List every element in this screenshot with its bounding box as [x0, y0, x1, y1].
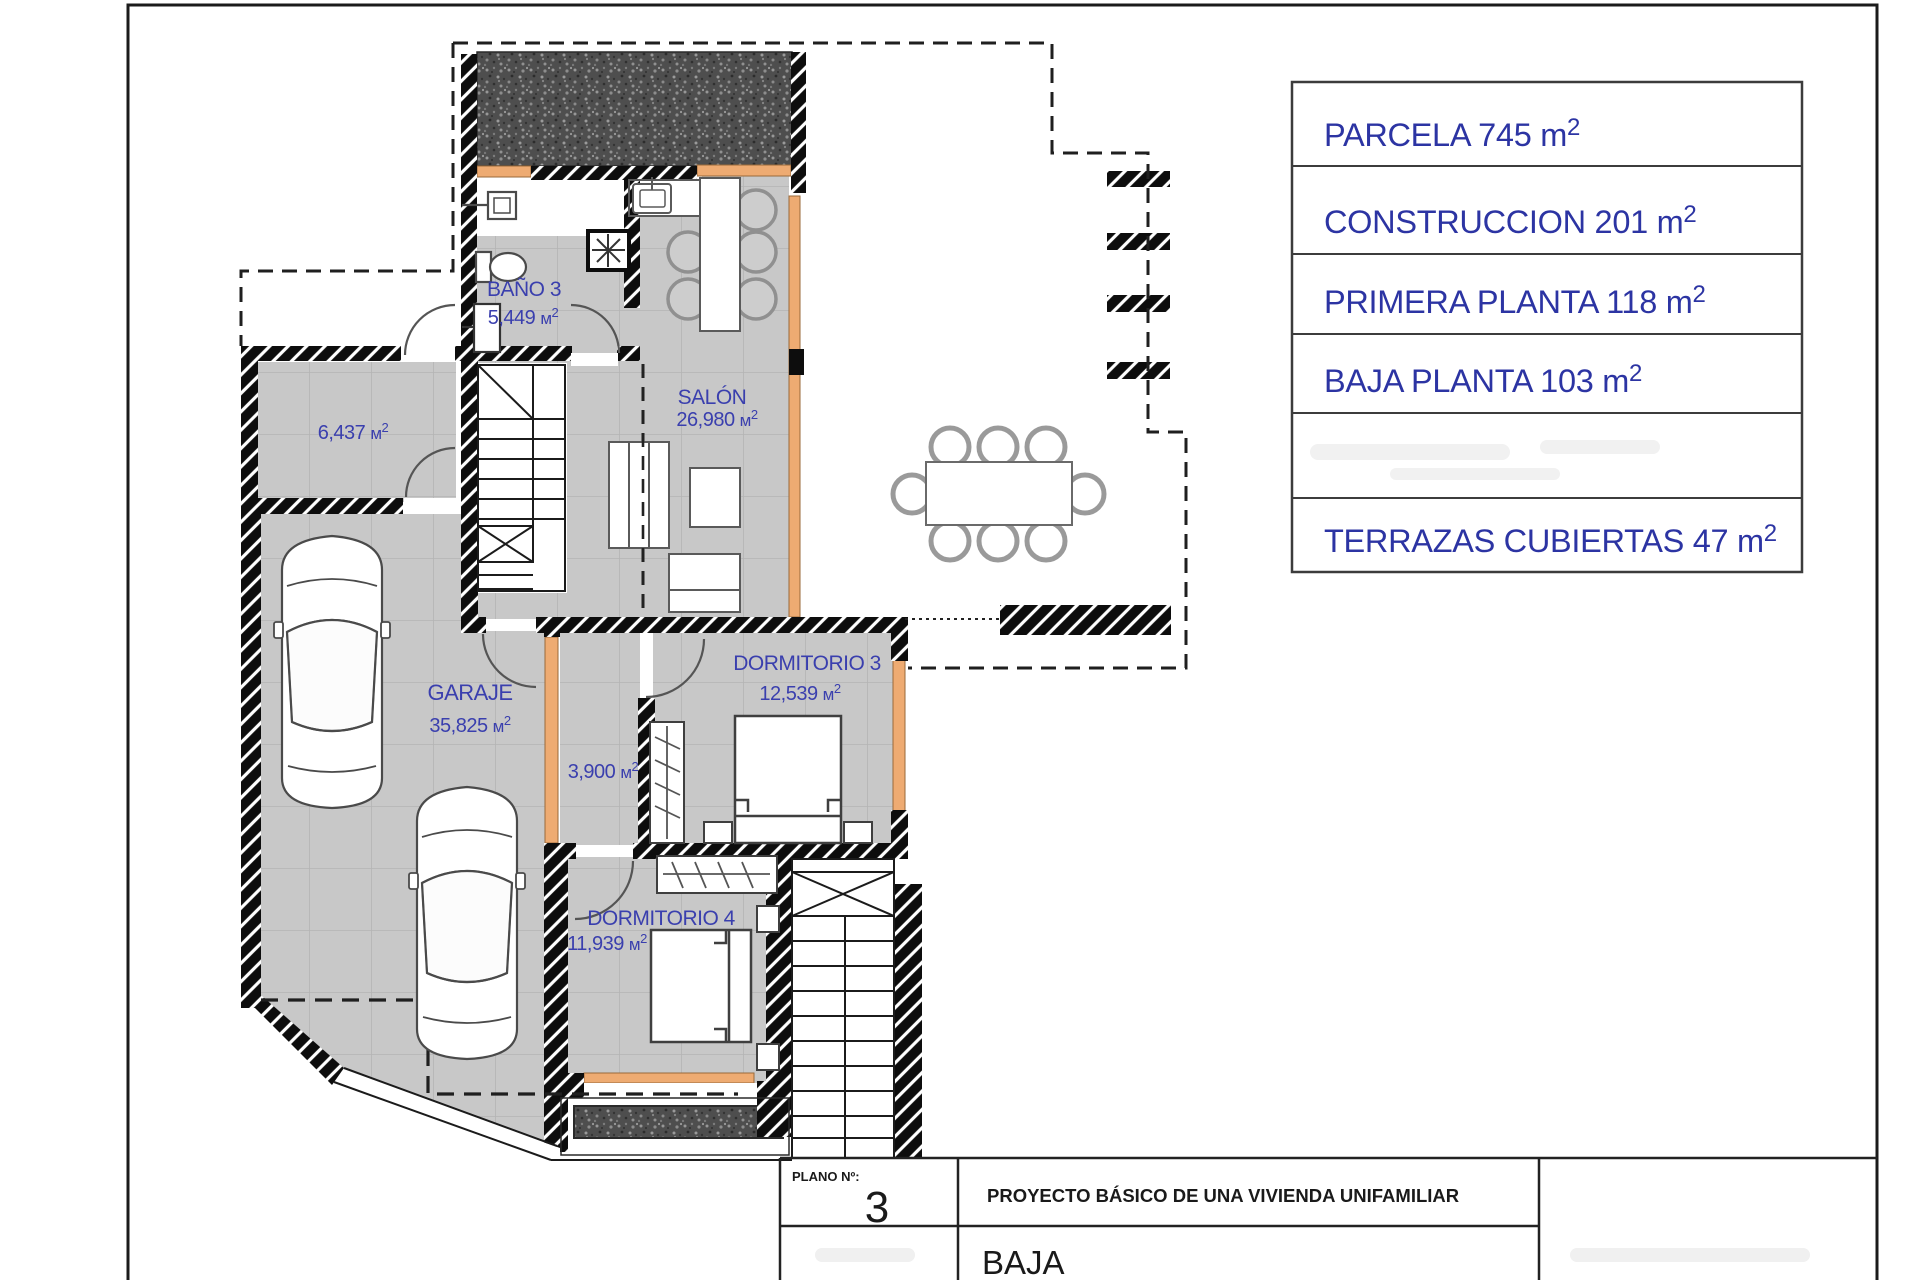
svg-text:DORMITORIO 4: DORMITORIO 4: [587, 907, 735, 930]
svg-text:PRIMERA PLANTA 118 m2: PRIMERA PLANTA 118 m2: [1324, 281, 1706, 320]
svg-text:GARAJE: GARAJE: [427, 680, 512, 705]
svg-text:DORMITORIO 3: DORMITORIO 3: [733, 652, 881, 675]
svg-text:6,437 м2: 6,437 м2: [318, 420, 389, 444]
svg-text:SALÓN: SALÓN: [678, 386, 747, 409]
svg-text:PARCELA 745 m2: PARCELA 745 m2: [1324, 114, 1580, 153]
svg-text:3,900 м2: 3,900 м2: [568, 759, 639, 783]
svg-text:11,939 м2: 11,939 м2: [567, 931, 647, 955]
svg-text:PLANO Nº:: PLANO Nº:: [792, 1169, 860, 1184]
svg-text:PROYECTO BÁSICO DE UNA VIVIEND: PROYECTO BÁSICO DE UNA VIVIENDA UNIFAMIL…: [987, 1185, 1459, 1206]
svg-text:5,449 м2: 5,449 м2: [488, 305, 559, 329]
svg-text:3: 3: [865, 1183, 889, 1232]
svg-text:BAÑO 3: BAÑO 3: [487, 277, 561, 301]
svg-text:26,980 м2: 26,980 м2: [676, 407, 757, 431]
svg-text:CONSTRUCCION 201 m2: CONSTRUCCION 201 m2: [1324, 201, 1696, 240]
svg-text:35,825 м2: 35,825 м2: [429, 713, 510, 737]
svg-text:BAJA PLANTA 103 m2: BAJA PLANTA 103 m2: [1324, 360, 1642, 399]
svg-text:TERRAZAS CUBIERTAS 47 m2: TERRAZAS CUBIERTAS 47 m2: [1324, 520, 1777, 559]
svg-text:12,539 м2: 12,539 м2: [759, 681, 840, 705]
svg-text:BAJA: BAJA: [982, 1244, 1065, 1280]
